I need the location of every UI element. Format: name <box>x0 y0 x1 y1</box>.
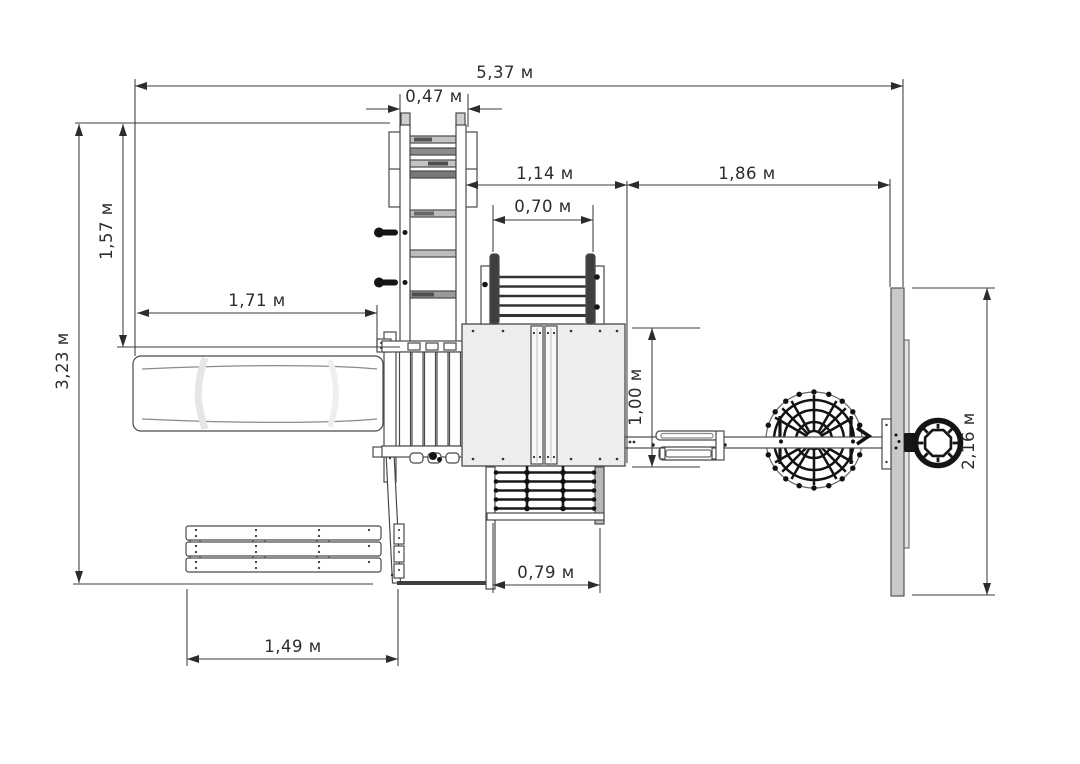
dim-label-handrail-width: 0,70 м <box>514 197 571 216</box>
dim-label-ladder-to-platform: 1,14 м <box>516 164 573 183</box>
platform-handrail <box>481 254 604 324</box>
dim-label-slide-length: 1,71 м <box>228 291 285 310</box>
dim-label-net-width: 0,79 м <box>517 563 574 582</box>
deck-hook <box>429 452 437 460</box>
ladder <box>374 113 477 352</box>
slide <box>133 356 383 431</box>
bench <box>186 524 404 578</box>
main-platform <box>462 324 625 466</box>
dim-label-total-depth: 3,23 м <box>53 332 72 389</box>
plan-canvas: 5,37 м 0,47 м 1,14 м 1,86 м 0,70 м 1,71 … <box>0 0 1080 764</box>
dim-label-bench-length: 1,49 м <box>264 637 321 656</box>
dim-label-total-width: 5,37 м <box>476 63 533 82</box>
dim-label-upper-depth: 1,57 м <box>97 202 116 259</box>
steering-wheel <box>904 421 961 466</box>
dim-label-climbwall-length: 2,16 м <box>959 412 978 469</box>
dim-label-platform-depth: 1,00 м <box>626 368 645 425</box>
plan-drawing: 5,37 м 0,47 м 1,14 м 1,86 м 0,70 м 1,71 … <box>0 0 1080 764</box>
dim-label-platform-to-climbwall: 1,86 м <box>718 164 775 183</box>
dim-label-ladder-width: 0,47 м <box>405 87 462 106</box>
